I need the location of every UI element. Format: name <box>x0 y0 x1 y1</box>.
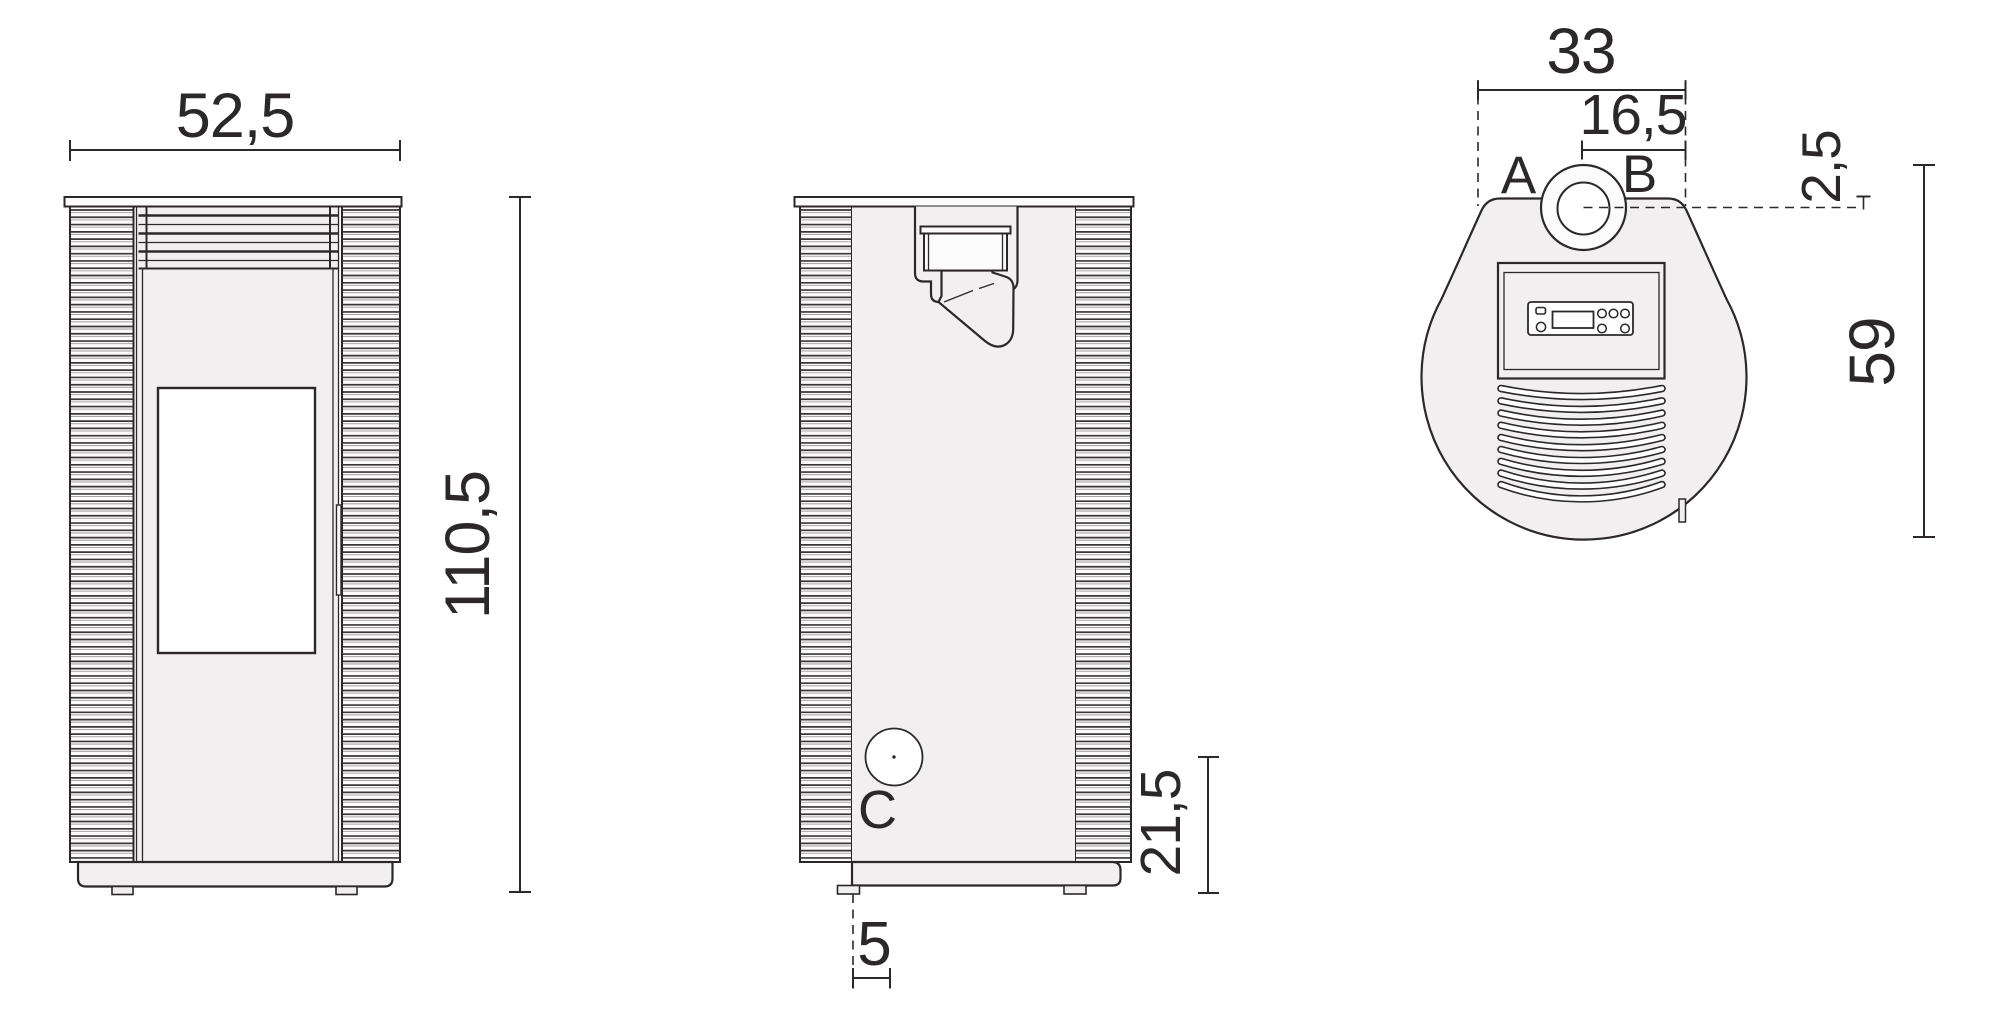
back-width-label: 33 <box>1546 15 1615 87</box>
side-top-cap <box>795 197 1134 207</box>
front-height-dimension: 110,5 <box>433 197 531 892</box>
control-button <box>1609 309 1618 318</box>
door-glass-window <box>158 388 315 653</box>
door-handle <box>337 505 342 595</box>
front-top-cap <box>65 197 402 207</box>
front-height-label: 110,5 <box>433 471 503 619</box>
flue-offset-label: 16,5 <box>1580 83 1687 147</box>
stove-dimension-drawing: 52,5 110,5 <box>0 0 1995 1024</box>
front-width-dimension: 52,5 <box>70 81 400 161</box>
flue-box-body <box>924 234 1007 271</box>
flue-collar-inner <box>1558 183 1610 235</box>
foot-offset-dimension: 5 <box>853 894 891 989</box>
foot-offset-label: 5 <box>857 910 890 979</box>
depth-label: 59 <box>1836 317 1908 386</box>
connection-b-label: B <box>1622 145 1656 204</box>
control-button <box>1536 322 1545 331</box>
front-left-foot <box>112 887 133 895</box>
control-button <box>1598 309 1607 318</box>
front-width-label: 52,5 <box>176 81 295 151</box>
port-c-label: C <box>858 780 896 840</box>
depth-dimension: 59 <box>1836 165 1935 537</box>
control-button <box>1598 324 1607 333</box>
control-display <box>1553 312 1594 329</box>
side-back-foot <box>1064 886 1086 895</box>
control-button <box>1621 309 1630 318</box>
air-intake-center-dot <box>892 755 895 758</box>
front-view: 52,5 110,5 <box>65 81 532 895</box>
control-panel <box>1528 302 1633 335</box>
control-button <box>1621 324 1630 333</box>
control-slot <box>1536 308 1546 315</box>
top-view: 33 16,5 A B 2,5 59 <box>1422 15 1935 540</box>
connection-a-label: A <box>1501 146 1537 205</box>
front-right-foot <box>336 887 357 895</box>
side-tab <box>1679 499 1686 522</box>
front-base-plinth <box>78 862 393 887</box>
side-base-plinth <box>852 862 1121 886</box>
port-height-label: 21,5 <box>1129 770 1193 877</box>
flue-box-lip <box>921 227 1011 234</box>
drawing-canvas: 52,5 110,5 <box>0 0 1995 1024</box>
port-height-dimension: 21,5 <box>1129 757 1219 893</box>
side-view: C 21,5 5 <box>795 197 1220 989</box>
flue-edge-label: 2,5 <box>1790 130 1852 203</box>
side-front-foot <box>838 886 860 895</box>
